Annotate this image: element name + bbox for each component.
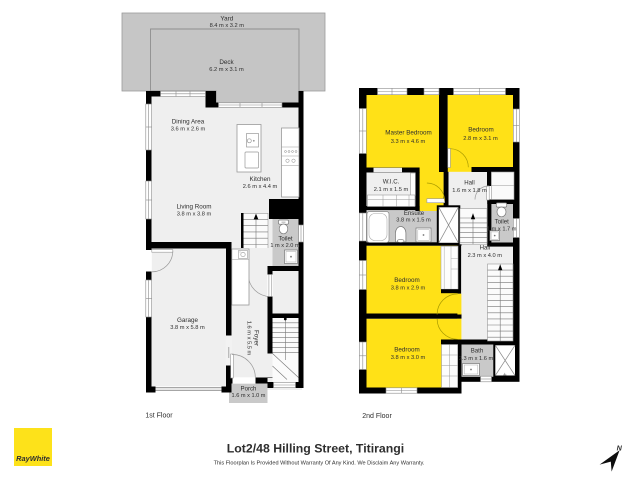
svg-text:3.8 m x 1.5 m: 3.8 m x 1.5 m	[396, 217, 431, 223]
svg-text:Ensuite: Ensuite	[404, 210, 425, 217]
svg-text:3.6 m x 2.6 m: 3.6 m x 2.6 m	[171, 126, 206, 132]
svg-text:3.8 m x 3.8 m: 3.8 m x 3.8 m	[177, 212, 212, 218]
svg-text:6.2 m x 3.1 m: 6.2 m x 3.1 m	[209, 67, 244, 73]
svg-text:3.3 m x 4.6 m: 3.3 m x 4.6 m	[391, 139, 426, 145]
svg-text:Deck: Deck	[219, 59, 234, 66]
svg-text:W.I.C.: W.I.C.	[383, 179, 400, 186]
svg-text:Porch: Porch	[241, 386, 257, 393]
svg-text:N: N	[617, 444, 623, 453]
svg-text:Toilet: Toilet	[495, 218, 510, 225]
svg-text:2nd Floor: 2nd Floor	[362, 413, 392, 420]
svg-text:Master Bedroom: Master Bedroom	[385, 130, 432, 137]
svg-text:Hall: Hall	[480, 245, 491, 252]
svg-text:1st Floor: 1st Floor	[145, 413, 173, 420]
svg-text:2.6 m x 4.4 m: 2.6 m x 4.4 m	[243, 184, 278, 190]
svg-text:Toilet: Toilet	[278, 236, 293, 243]
svg-text:Bedroom: Bedroom	[468, 126, 494, 133]
svg-text:2.3 m x 4.0 m: 2.3 m x 4.0 m	[468, 253, 503, 259]
svg-text:8.4 m x 3.2 m: 8.4 m x 3.2 m	[210, 23, 245, 29]
svg-text:Lot2/48 Hilling Street, Titira: Lot2/48 Hilling Street, Titirangi	[227, 441, 404, 455]
svg-text:Dining Area: Dining Area	[172, 119, 205, 126]
svg-text:RayWhite: RayWhite	[16, 454, 50, 463]
svg-text:Kitchen: Kitchen	[249, 176, 271, 183]
svg-text:Yard: Yard	[220, 16, 233, 23]
svg-text:Foyer: Foyer	[253, 330, 260, 346]
svg-text:Hall: Hall	[464, 180, 475, 187]
svg-text:2.1 m x 1.5 m: 2.1 m x 1.5 m	[374, 187, 409, 193]
svg-text:2.8 m x 3.1 m: 2.8 m x 3.1 m	[463, 136, 498, 142]
svg-text:2.3 m x 1.6 m: 2.3 m x 1.6 m	[459, 356, 494, 362]
svg-text:1 m x 1.7 m: 1 m x 1.7 m	[487, 227, 517, 233]
svg-text:This Floorplan Is Provided Wit: This Floorplan Is Provided Without Warra…	[214, 460, 425, 466]
svg-text:1.6 m x 5.5 m: 1.6 m x 5.5 m	[246, 321, 252, 356]
svg-text:Bedroom: Bedroom	[394, 277, 420, 284]
svg-text:1.6 m x 1.0 m: 1.6 m x 1.0 m	[232, 393, 266, 399]
svg-text:1.6 m x 1.8 m: 1.6 m x 1.8 m	[452, 188, 487, 194]
svg-text:Bedroom: Bedroom	[394, 347, 420, 354]
svg-text:Garage: Garage	[177, 317, 199, 324]
svg-text:Bath: Bath	[471, 348, 484, 355]
svg-text:3.8 m x 3.0 m: 3.8 m x 3.0 m	[391, 355, 426, 361]
svg-text:3.8 m x 2.9 m: 3.8 m x 2.9 m	[391, 286, 426, 292]
svg-text:3.8 m x 5.8 m: 3.8 m x 5.8 m	[170, 325, 205, 331]
svg-text:Living Room: Living Room	[177, 204, 212, 211]
svg-text:1 m x 2.0 m: 1 m x 2.0 m	[270, 243, 300, 249]
